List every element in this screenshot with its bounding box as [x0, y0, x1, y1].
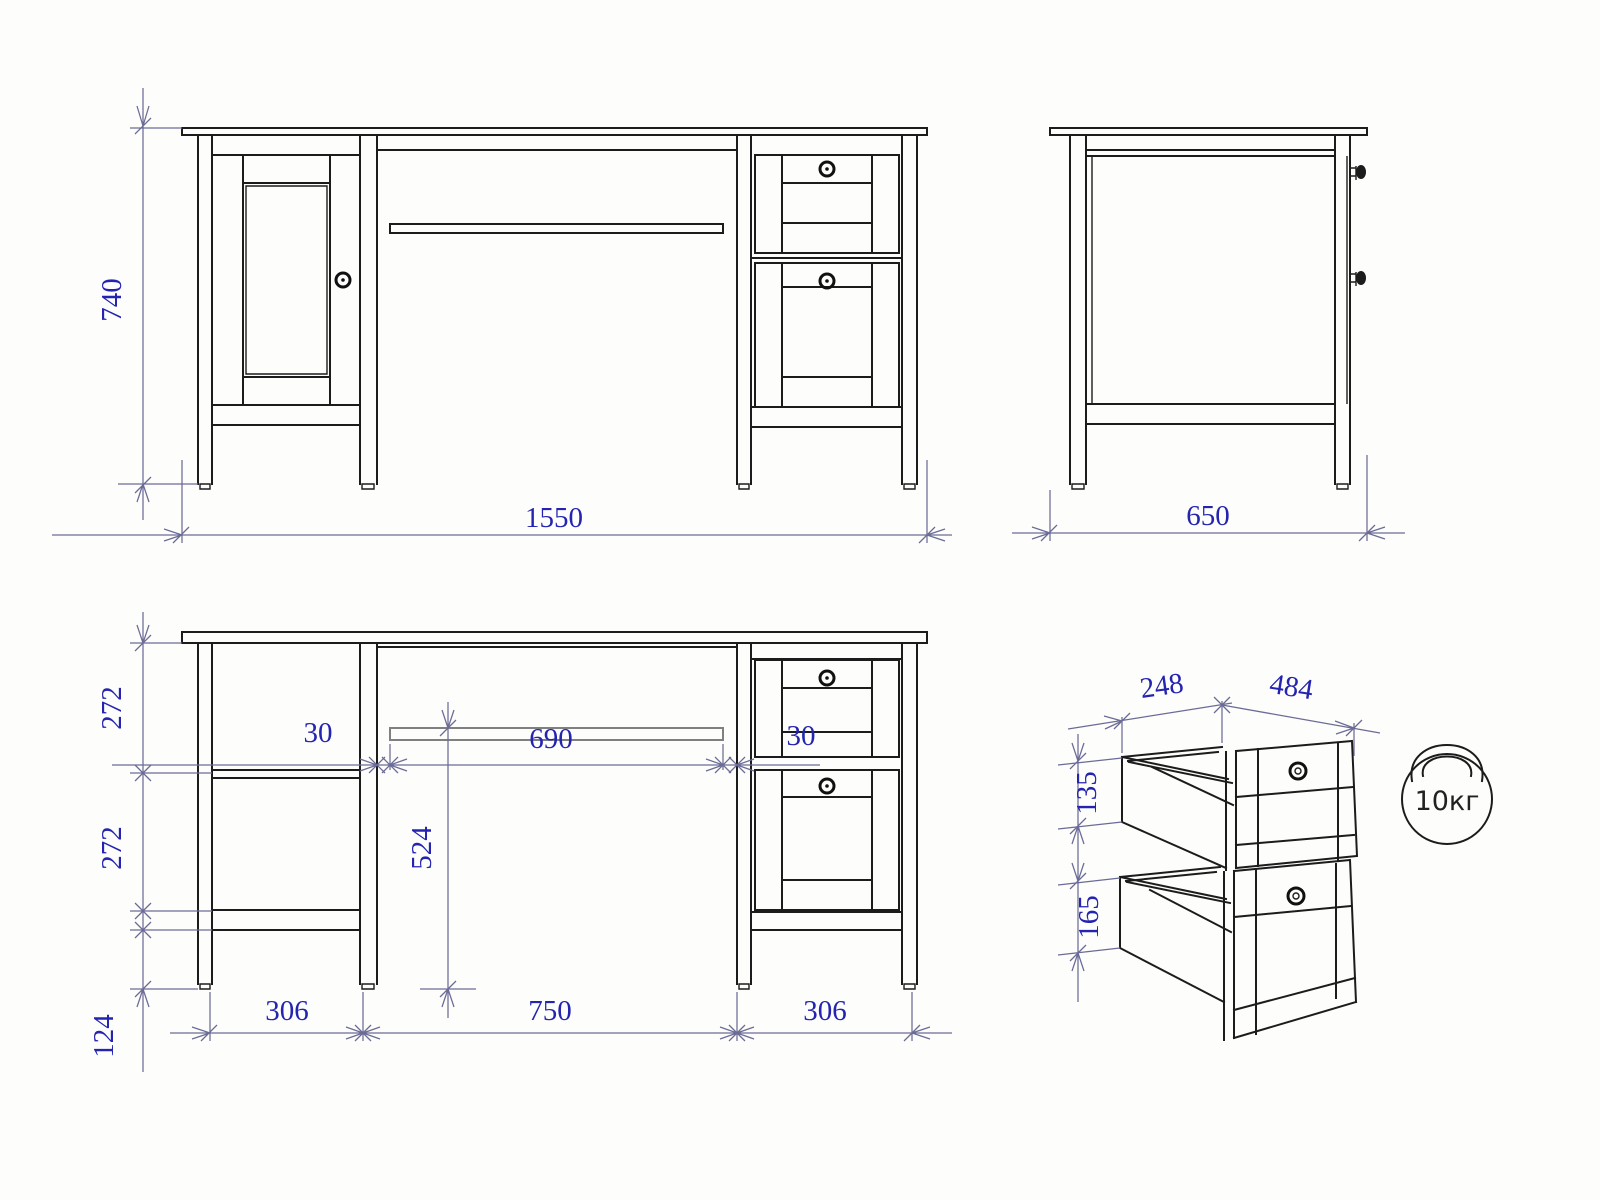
desk-technical-drawing: 740 1550 650 [0, 0, 1600, 1200]
weight-capacity-icon: 10кг [1402, 745, 1492, 844]
dim-side-depth: 650 [1186, 500, 1230, 532]
dim-bottom-drawer-height: 165 [1073, 895, 1105, 939]
dim-top-drawer-height: 135 [1071, 771, 1103, 815]
max-load-label: 10кг [1415, 786, 1480, 817]
dim-tray-to-floor: 524 [406, 826, 438, 870]
dim-knee-space: 750 [528, 995, 572, 1027]
cabinet-door [212, 155, 360, 425]
dim-tray-gap-left: 30 [304, 717, 333, 749]
drawer-stack [751, 155, 902, 427]
top-drawer-iso [1122, 741, 1357, 870]
bottom-drawer-iso [1120, 860, 1356, 1040]
tray-dimensions [112, 744, 820, 773]
dim-upper-compartment: 272 [96, 686, 128, 730]
dim-lower-compartment: 272 [96, 826, 128, 870]
dim-tray-width: 690 [529, 723, 573, 755]
dim-left-pedestal: 306 [265, 995, 309, 1027]
drawers-isometric-view: 248 484 135 165 10кг [1058, 667, 1492, 1040]
keyboard-tray [390, 224, 723, 233]
dim-drawer-width: 484 [1267, 668, 1315, 706]
drawing-canvas: 740 1550 650 [0, 0, 1600, 1200]
front-view: 740 1550 [52, 88, 952, 543]
side-knob-icon [1350, 271, 1366, 286]
dim-right-pedestal: 306 [803, 995, 847, 1027]
front-view-dimensions [52, 88, 952, 543]
dim-tray-gap-right: 30 [787, 720, 816, 752]
drawer-knob-icon [1288, 888, 1304, 904]
dim-front-width: 1550 [525, 502, 583, 534]
side-view: 650 [1012, 128, 1405, 541]
drawer-stack-section [751, 659, 902, 930]
dim-leg-height: 124 [88, 1014, 120, 1058]
section-left-dimensions [130, 612, 212, 1072]
dim-drawer-depth: 248 [1138, 667, 1186, 705]
front-section-view: 272 272 124 30 690 30 524 306 750 306 [88, 612, 952, 1072]
side-knob-icon [1350, 165, 1366, 180]
drawer-knob-icon [1290, 763, 1306, 779]
dim-front-height: 740 [96, 278, 128, 322]
